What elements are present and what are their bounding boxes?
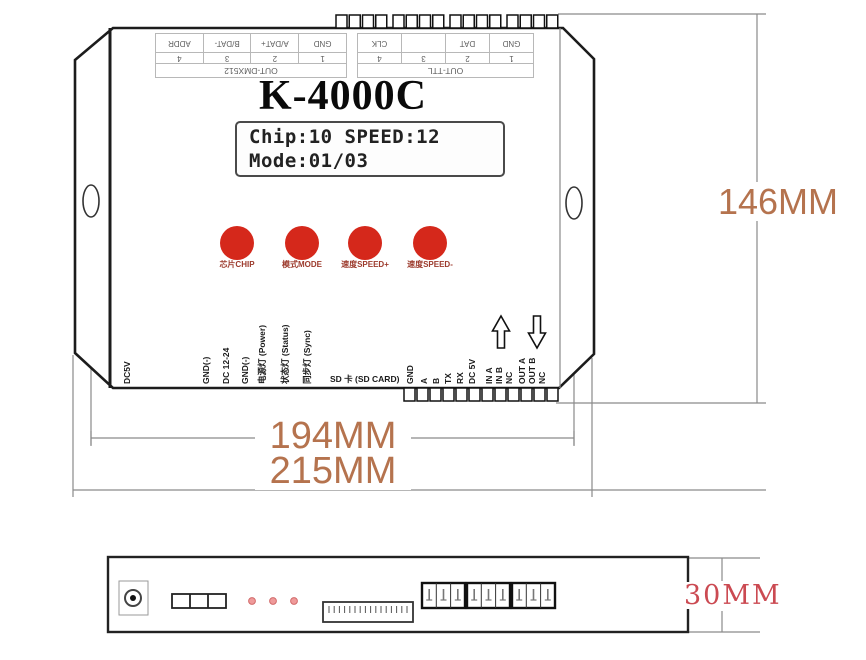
terminal-tooth — [507, 15, 518, 28]
speed-minus-button-label: 速度SPEED- — [400, 259, 460, 270]
terminal-tooth — [393, 15, 404, 28]
pin-dc5v: DC 5V — [467, 359, 477, 384]
lcd-display: Chip:10 SPEED:12 Mode:01/03 — [235, 121, 505, 177]
pin-a: A — [419, 378, 429, 384]
mounting-hole-right — [566, 187, 582, 219]
pin-signal: ADDR — [156, 34, 203, 52]
pin-number: 1 — [298, 52, 346, 63]
pin-number: 1 — [489, 52, 533, 63]
lcd-line2: Mode:01/03 — [249, 149, 503, 173]
terminal-tooth — [508, 388, 519, 401]
dimension-depth: 30MM — [684, 582, 762, 609]
pin-signal: CLK — [358, 34, 401, 52]
pin-out-b: OUT B — [527, 358, 537, 384]
dimension-height: 146MM — [712, 184, 844, 220]
pin-tx: TX — [443, 373, 453, 384]
pin-signal: GND — [298, 34, 346, 52]
pin-number: 4 — [156, 52, 203, 63]
pin-in-a: IN A — [484, 367, 494, 384]
terminal-tooth — [443, 388, 454, 401]
terminal-tooth — [450, 15, 461, 28]
label-power-led: 电源灯 (Power) — [257, 325, 267, 384]
terminal-tooth — [534, 388, 545, 401]
model-title: K-4000C — [243, 72, 443, 120]
pin-number: 2 — [445, 52, 489, 63]
mounting-hole-left — [83, 185, 99, 217]
terminal-tooth — [495, 388, 506, 401]
sd-card-label: SD 卡 (SD CARD) — [330, 373, 399, 385]
pin-nc-2: NC — [537, 372, 547, 384]
sd-card-slot — [323, 602, 413, 622]
terminal-tooth — [430, 388, 441, 401]
terminal-tooth — [482, 388, 493, 401]
speed-plus-button[interactable] — [348, 226, 382, 260]
label-sync-led: 同步灯 (Sync) — [302, 330, 312, 384]
terminal-tooth — [547, 388, 558, 401]
chip-button[interactable] — [220, 226, 254, 260]
output-terminal-blocks — [422, 583, 555, 608]
terminal-tooth — [469, 388, 480, 401]
pin-signal: DAT — [445, 34, 489, 52]
pin-signal: GND — [489, 34, 533, 52]
pin-signal — [401, 34, 445, 52]
pin-number: 4 — [358, 52, 401, 63]
terminal-tooth — [349, 15, 360, 28]
label-dc5v: DC5V — [122, 361, 132, 384]
mode-button[interactable] — [285, 226, 319, 260]
terminal-tooth — [433, 15, 444, 28]
pin-signal: A/DAT+ — [251, 34, 299, 52]
lcd-line1: Chip:10 SPEED:12 — [249, 125, 503, 149]
pin-number: 3 — [401, 52, 445, 63]
port-table-out-dmx512: OUT-DMX512 1 2 3 4 GND A/DAT+ B/DAT- ADD… — [155, 33, 347, 78]
pin-signal: B/DAT- — [203, 34, 251, 52]
terminal-tooth — [520, 15, 531, 28]
label-dc12-24: DC 12-24 — [221, 348, 231, 384]
terminal-tooth — [376, 15, 387, 28]
pin-b: B — [431, 378, 441, 384]
terminal-tooth — [417, 388, 428, 401]
technical-diagram: K-4000C Chip:10 SPEED:12 Mode:01/03 芯片CH… — [0, 0, 866, 660]
terminal-tooth — [477, 15, 488, 28]
label-status-led: 状态灯 (Status) — [280, 324, 290, 384]
terminal-tooth — [363, 15, 374, 28]
terminal-tooth — [456, 388, 467, 401]
speed-minus-button[interactable] — [413, 226, 447, 260]
pin-in-b: IN B — [494, 367, 504, 384]
pin-nc-1: NC — [504, 372, 514, 384]
terminal-tooth — [406, 15, 417, 28]
pin-number: 3 — [203, 52, 251, 63]
label-gnd-1: GND(-) — [201, 357, 211, 384]
terminal-tooth — [490, 15, 501, 28]
dimension-total-width: 215MM — [255, 452, 411, 490]
mode-button-label: 模式MODE — [272, 259, 332, 270]
pin-out-a: OUT A — [517, 358, 527, 384]
terminal-tooth — [463, 15, 474, 28]
chip-button-label: 芯片CHIP — [207, 259, 267, 270]
port-title: OUT-TTL — [358, 63, 533, 77]
dc-jack-pin — [130, 595, 136, 601]
terminal-tooth — [336, 15, 347, 28]
terminal-tooth — [420, 15, 431, 28]
pin-gnd: GND — [405, 365, 415, 384]
terminal-tooth — [404, 388, 415, 401]
terminal-tooth — [547, 15, 558, 28]
power-terminal-strip — [172, 594, 226, 608]
terminal-tooth — [534, 15, 545, 28]
label-gnd-2: GND(-) — [240, 357, 250, 384]
pin-rx: RX — [455, 372, 465, 384]
pin-number: 2 — [251, 52, 299, 63]
port-table-out-ttl: OUT-TTL 1 2 3 4 GND DAT CLK — [357, 33, 534, 78]
speed-plus-button-label: 速度SPEED+ — [335, 259, 395, 270]
port-title: OUT-DMX512 — [156, 63, 346, 77]
terminal-tooth — [521, 388, 532, 401]
